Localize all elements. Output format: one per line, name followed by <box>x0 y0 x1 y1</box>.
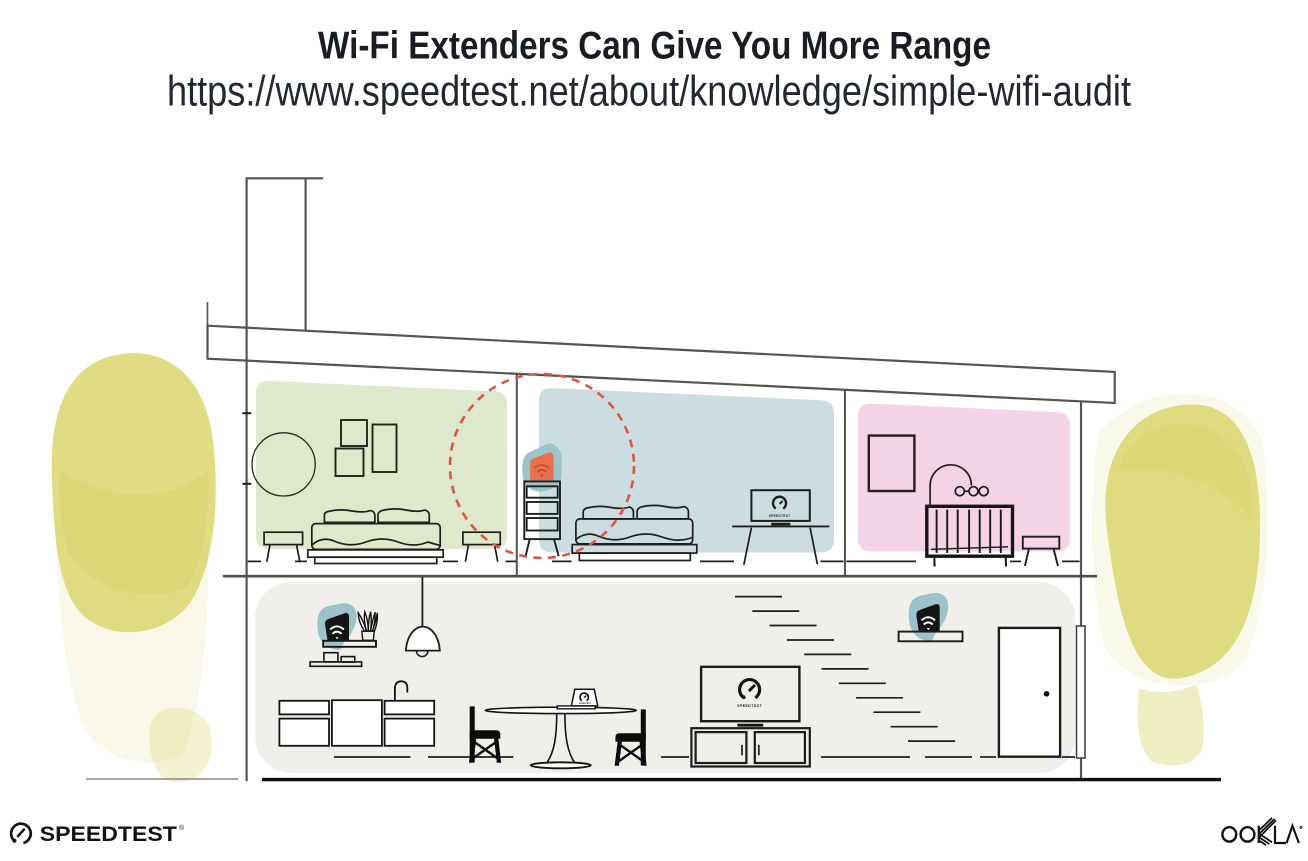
svg-text:https://www.speedtest.net/abou: https://www.speedtest.net/about/knowledg… <box>167 68 1131 116</box>
svg-text:SPEEDTEST: SPEEDTEST <box>579 703 592 705</box>
svg-text:Wi-Fi Extenders Can Give You M: Wi-Fi Extenders Can Give You More Range <box>318 25 991 68</box>
svg-text:SPEEDTEST: SPEEDTEST <box>769 514 791 518</box>
svg-text:SPEEDTEST: SPEEDTEST <box>737 704 762 708</box>
svg-text:®: ® <box>179 824 185 832</box>
svg-text:SPEEDTEST: SPEEDTEST <box>40 822 177 846</box>
